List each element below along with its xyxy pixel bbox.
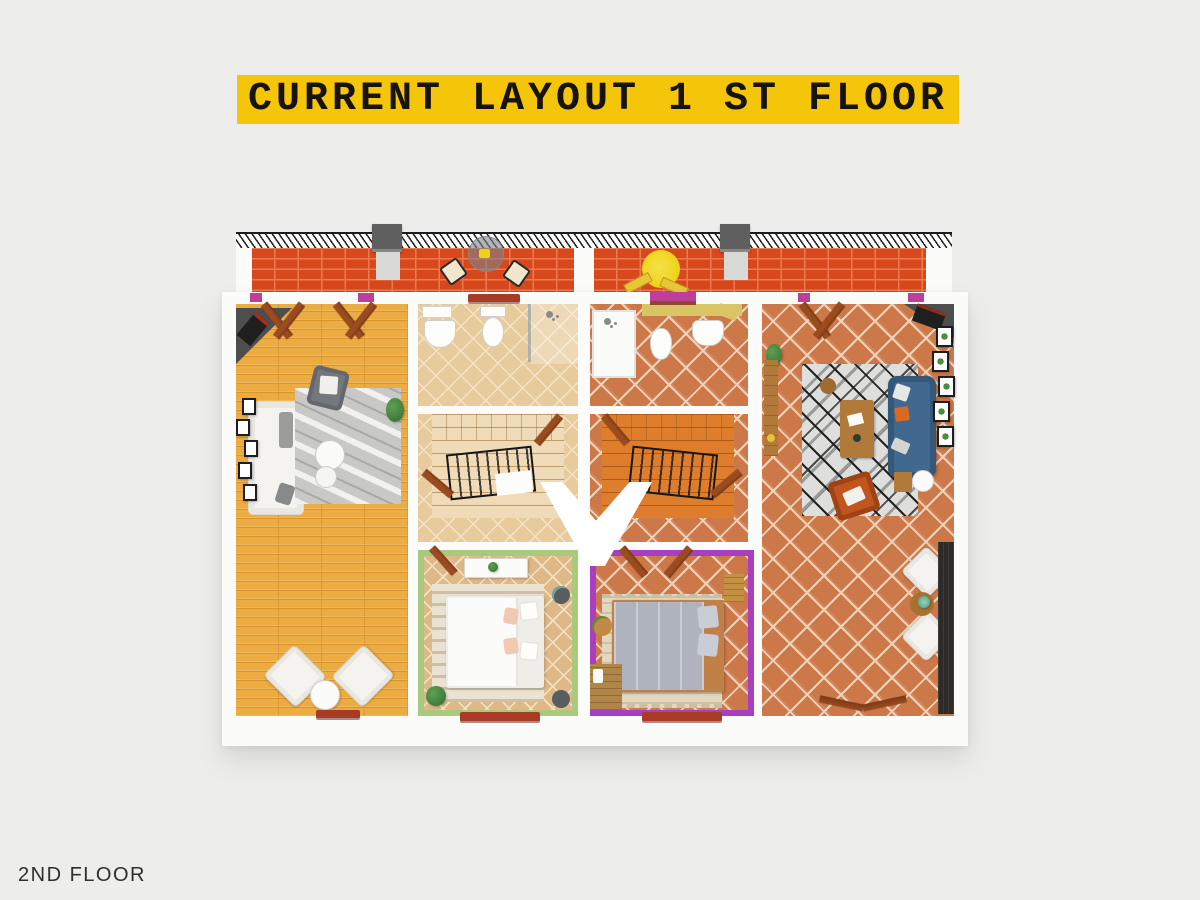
room-living-right: [762, 304, 954, 716]
room-bath-left: [418, 304, 578, 406]
bidet: [650, 328, 672, 360]
picture-frame: [933, 401, 950, 422]
sofa-pillow-orange: [894, 406, 910, 422]
bistro-table-items: [479, 249, 490, 258]
side-table-round: [310, 680, 340, 710]
bathroom-window-sill: [468, 294, 520, 302]
vanity: [422, 306, 452, 318]
balcony-door-leaf: [819, 695, 863, 711]
chimney-right-base: [724, 252, 748, 280]
bed-pillow-gray: [697, 633, 719, 657]
nightstand-round: [552, 586, 570, 604]
picture-frame: [938, 376, 955, 397]
wall-accent-magenta: [250, 293, 262, 302]
picture-frame: [937, 426, 954, 447]
shower-floor: [530, 304, 578, 364]
frames-right-wall: [932, 326, 958, 462]
terrace-railing: [236, 232, 952, 248]
armchair-cushion: [842, 486, 866, 507]
picture-frame: [236, 419, 250, 436]
room-stairs-left: [418, 414, 578, 542]
table-plant: [918, 596, 930, 608]
floorplan: [222, 216, 968, 746]
paper: [847, 412, 864, 426]
bed-pillow-gray: [697, 605, 719, 629]
wood-cube-table: [894, 472, 912, 492]
picture-frame: [936, 326, 953, 347]
title-banner: CURRENT LAYOUT 1 ST FLOOR: [237, 75, 959, 124]
shower-head-icon: [546, 311, 553, 318]
room-bath-right: [590, 304, 748, 406]
picture-frame: [242, 398, 256, 415]
armchair-pillow: [319, 375, 338, 394]
round-side-table: [592, 616, 612, 636]
sofa-pillow-gray: [890, 437, 910, 455]
sofa-pillow: [274, 482, 295, 506]
chimney-left-base: [376, 252, 400, 280]
screenshot-root: CURRENT LAYOUT 1 ST FLOOR: [0, 0, 1200, 900]
armchair-white-2: [331, 644, 395, 708]
picture-frame: [244, 440, 258, 457]
room-bedroom-left: [418, 550, 578, 716]
plant-living-left: [386, 398, 404, 422]
shower-glass: [528, 304, 531, 362]
bowl: [853, 434, 861, 442]
wooden-bench: [590, 664, 622, 710]
frames-left-wall: [236, 398, 260, 502]
nightstand-round: [552, 690, 570, 708]
coffee-table-large: [315, 440, 345, 470]
dresser-plant: [488, 562, 498, 572]
rug-living-left: [295, 388, 401, 504]
room-living-left: [236, 304, 408, 716]
window-sill: [460, 712, 540, 721]
floor-label-text: 2ND FLOOR: [18, 864, 146, 886]
toilet-bowl: [482, 317, 504, 347]
title-banner-text: CURRENT LAYOUT 1 ST FLOOR: [248, 77, 948, 122]
stair-landing-left: [495, 470, 533, 496]
picture-frame: [932, 351, 949, 372]
bed-pillow-white: [519, 641, 539, 661]
sofa-pillow-white: [892, 383, 911, 402]
coffee-table-wood: [840, 400, 874, 458]
bed-gray-mattress: [614, 602, 704, 690]
dark-deck: [938, 542, 954, 714]
towels: [593, 669, 603, 683]
toilet-tank: [480, 306, 506, 317]
window-sill: [316, 710, 360, 718]
bed-pillow-peach: [503, 607, 520, 625]
sofa-pillow: [279, 412, 293, 448]
bathroom-sink: [692, 320, 724, 346]
sofa-blue: [888, 376, 936, 478]
terrace-planter: [650, 292, 696, 305]
wall-accent-magenta: [358, 293, 374, 302]
wooden-chest: [724, 574, 744, 602]
picture-frame: [238, 462, 252, 479]
bed-pillow-peach: [503, 637, 519, 655]
balcony-door-leaf: [862, 695, 906, 711]
bedroom-plant: [426, 686, 446, 706]
wood-stool: [820, 378, 836, 394]
walkin-shower: [592, 310, 636, 378]
wall-accent-magenta: [908, 293, 924, 302]
chimney-left: [372, 224, 402, 252]
white-stool: [912, 470, 934, 492]
chimney-right: [720, 224, 750, 252]
picture-frame: [243, 484, 257, 501]
floor-label: 2ND FLOOR: [18, 864, 146, 887]
bathroom-sink: [424, 320, 456, 348]
room-bedroom-right: [590, 550, 754, 716]
wall-accent-magenta: [798, 293, 810, 302]
bed-pillow-white: [519, 601, 539, 621]
console-fruit: [767, 434, 775, 442]
window-sill: [642, 712, 722, 721]
shower-head-icon: [604, 318, 611, 325]
coffee-table-small: [315, 466, 337, 488]
